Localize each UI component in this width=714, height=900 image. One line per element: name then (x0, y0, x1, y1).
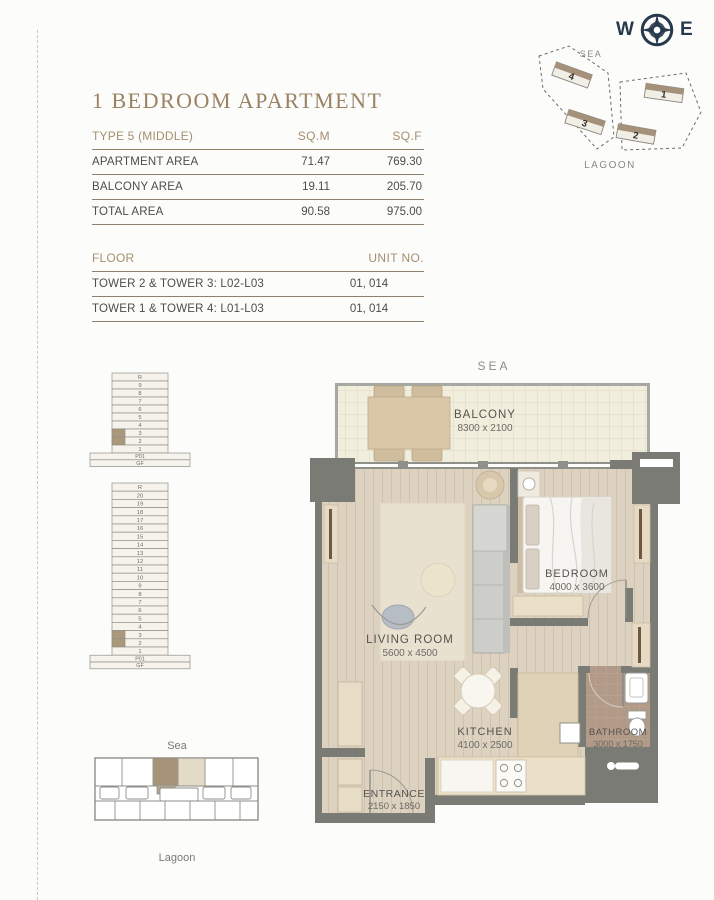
stack-base-label: P01 (135, 454, 145, 460)
stack-base-label: P01 (135, 656, 145, 662)
fridge (560, 723, 580, 743)
tower-block-4: 4 (552, 62, 593, 89)
stack-floor-label: 16 (137, 526, 143, 532)
floor-row-label: TOWER 2 & TOWER 3: L02-L03 (92, 278, 314, 290)
stack-floor-label: 3 (138, 633, 141, 639)
stack-floor-label: 8 (138, 592, 141, 598)
kitchen-dims: 4100 x 2500 (457, 740, 512, 751)
bathroom-label: BATHROOM (589, 727, 647, 738)
area-row-sqm: 71.47 (250, 156, 340, 168)
stack-floor-label: 5 (138, 616, 141, 622)
dining-table (453, 666, 503, 716)
stack-base-label: GF (136, 461, 144, 467)
stack-floor-label: 9 (138, 584, 141, 590)
entrance-dims: 2150 x 1850 (368, 801, 420, 812)
stack-floor-label: 13 (137, 551, 143, 557)
living-room-dims: 5600 x 4500 (382, 648, 437, 659)
stack-floor-label: 10 (137, 575, 143, 581)
area-header-sqf: SQ.F (340, 129, 424, 143)
area-header-sqm: SQ.M (250, 129, 340, 143)
living-room-label: LIVING ROOM (366, 634, 454, 646)
site-plan-sea-label: SEA (580, 49, 603, 59)
key-plan-lagoon-label: Lagoon (159, 852, 196, 864)
sofa (473, 505, 510, 653)
sliding-window (322, 461, 648, 469)
bathroom-dims: 3000 x 1750 (593, 739, 643, 749)
floor-header-floor: FLOOR (92, 251, 314, 265)
stack-floor-label: R (138, 375, 142, 381)
stack-floor-highlight (112, 639, 125, 647)
key-plan-unit-highlight-dark (154, 759, 179, 786)
floor-row-unit: 01, 014 (314, 278, 424, 290)
balcony-dims: 8300 x 2100 (457, 423, 512, 434)
stack-floor-highlight (112, 631, 125, 639)
stack-floor-label: 6 (138, 407, 141, 413)
compass-west-label: W (616, 19, 634, 41)
nightstand (518, 471, 540, 497)
balcony-label: BALCONY (454, 409, 516, 421)
stack-floor-label: 17 (137, 518, 143, 524)
page-title: 1 BEDROOM APARTMENT (92, 88, 382, 114)
area-header-type: TYPE 5 (MIDDLE) (92, 129, 250, 143)
stack-floor-label: 1 (138, 649, 141, 655)
area-table-row: TOTAL AREA90.58975.00 (92, 200, 424, 225)
stack-diagram-tall-tower: R2019181716151413121110987654321P01GF (86, 481, 194, 675)
site-parcel-left (539, 46, 614, 149)
compass-east-label: E (680, 19, 693, 41)
area-table-body: APARTMENT AREA71.47769.30BALCONY AREA19.… (92, 150, 424, 225)
stack-floor-label: 15 (137, 534, 143, 540)
floor-table-row: TOWER 2 & TOWER 3: L02-L0301, 014 (92, 272, 424, 297)
brochure-page: 1 BEDROOM APARTMENT TYPE 5 (MIDDLE) SQ.M… (0, 0, 714, 900)
area-row-label: TOTAL AREA (92, 206, 250, 218)
stack-floor-label: 1 (138, 447, 141, 453)
area-row-sqf: 769.30 (340, 156, 424, 168)
area-row-sqf: 205.70 (340, 181, 424, 193)
floor-row-label: TOWER 1 & TOWER 4: L01-L03 (92, 303, 314, 315)
stack-floor-label: 5 (138, 415, 141, 421)
site-plan: SEA 4 3 1 2 LAGOON (536, 40, 714, 175)
towel-rail-icon (607, 762, 639, 770)
plan-sea-label: SEA (477, 359, 510, 373)
area-row-sqm: 19.11 (250, 181, 340, 193)
area-row-sqf: 975.00 (340, 206, 424, 218)
stack-floor-label: 12 (137, 559, 143, 565)
stack-floor-label: 3 (138, 431, 141, 437)
stack-floor-label: 14 (137, 543, 144, 549)
stack-diagram-short-tower: R987654321P01GF (86, 370, 194, 472)
stack-floor-label: 9 (138, 383, 141, 389)
stack-floor-label: 20 (137, 493, 143, 499)
area-table-row: BALCONY AREA19.11205.70 (92, 175, 424, 200)
stack-floor-highlight (112, 429, 125, 437)
stack-floor-label: 7 (138, 399, 141, 405)
tower-block-1: 1 (644, 83, 684, 103)
area-table: TYPE 5 (MIDDLE) SQ.M SQ.F APARTMENT AREA… (92, 124, 424, 225)
site-plan-lagoon-label: LAGOON (584, 160, 636, 171)
key-plan-unit-highlight-light (179, 759, 205, 786)
tower-block-3: 3 (565, 109, 606, 135)
key-plan-sea-label: Sea (167, 740, 187, 752)
floor-table: FLOOR UNIT NO. TOWER 2 & TOWER 3: L02-L0… (92, 246, 424, 322)
stack-floor-label: R (138, 485, 142, 491)
stack-floor-label: 2 (138, 439, 141, 445)
side-table-top (483, 478, 497, 492)
left-window-seat (324, 505, 338, 563)
area-row-label: APARTMENT AREA (92, 156, 250, 168)
shaft-vent-slot (640, 459, 673, 467)
area-row-sqm: 90.58 (250, 206, 340, 218)
fold-line (37, 30, 38, 900)
stack-base-label: GF (136, 663, 144, 669)
bedroom-bench (513, 596, 583, 616)
area-row-label: BALCONY AREA (92, 181, 250, 193)
floor-table-header: FLOOR UNIT NO. (92, 246, 424, 272)
floor-table-body: TOWER 2 & TOWER 3: L02-L0301, 014TOWER 1… (92, 272, 424, 322)
area-table-header: TYPE 5 (MIDDLE) SQ.M SQ.F (92, 124, 424, 150)
stack-floor-label: 8 (138, 391, 141, 397)
bedroom-dims: 4000 x 3600 (549, 582, 604, 593)
key-plan: Sea Lagoon (60, 736, 290, 868)
bedroom-label: BEDROOM (545, 568, 609, 580)
pouf (382, 605, 414, 629)
stack-floor-label: 18 (137, 510, 143, 516)
floor-plan: SEA (310, 355, 714, 840)
stack-floor-label: 6 (138, 608, 141, 614)
stack-floor-label: 19 (137, 502, 143, 508)
coffee-table (421, 563, 455, 597)
area-table-row: APARTMENT AREA71.47769.30 (92, 150, 424, 175)
stack-floor-label: 7 (138, 600, 141, 606)
floor-table-row: TOWER 1 & TOWER 4: L01-L0301, 014 (92, 297, 424, 322)
stack-floor-highlight (112, 437, 125, 445)
bathroom-sink (625, 673, 648, 703)
floor-header-unit: UNIT NO. (314, 251, 424, 265)
entrance-label: ENTRANCE (363, 788, 425, 800)
stove (496, 760, 526, 792)
floor-row-unit: 01, 014 (314, 303, 424, 315)
stack-floor-label: 2 (138, 641, 141, 647)
kitchen-label: KITCHEN (457, 726, 512, 738)
stack-floor-label: 11 (137, 567, 143, 573)
